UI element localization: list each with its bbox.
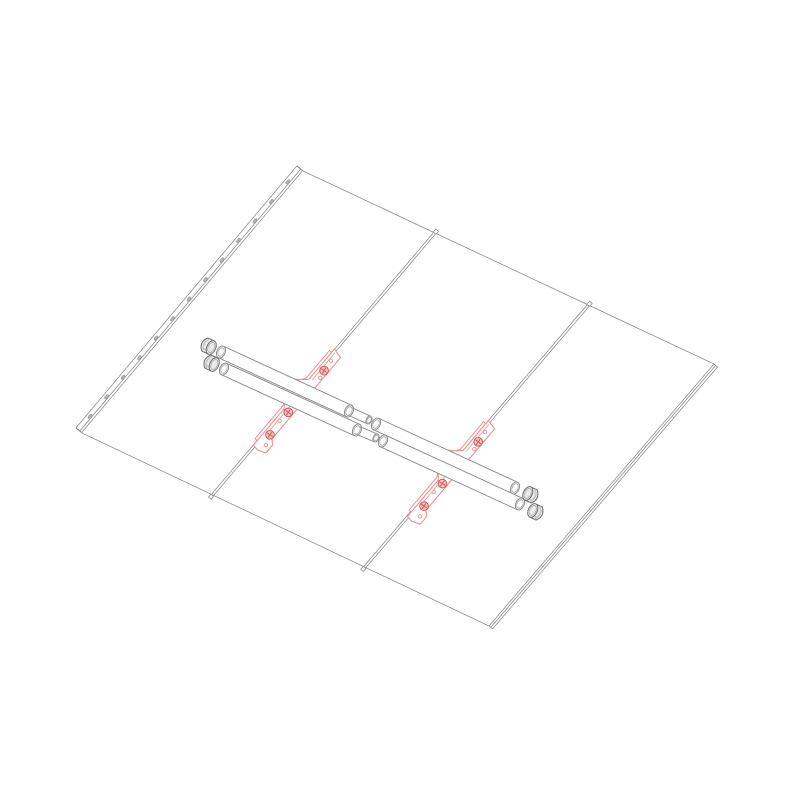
end-cap-lower-right (526, 502, 543, 520)
end-cap-upper-left (201, 338, 218, 356)
diagram-canvas (0, 0, 800, 800)
diagram-svg (0, 0, 800, 800)
rail-upper (215, 345, 522, 496)
roof-edges (82, 171, 718, 629)
